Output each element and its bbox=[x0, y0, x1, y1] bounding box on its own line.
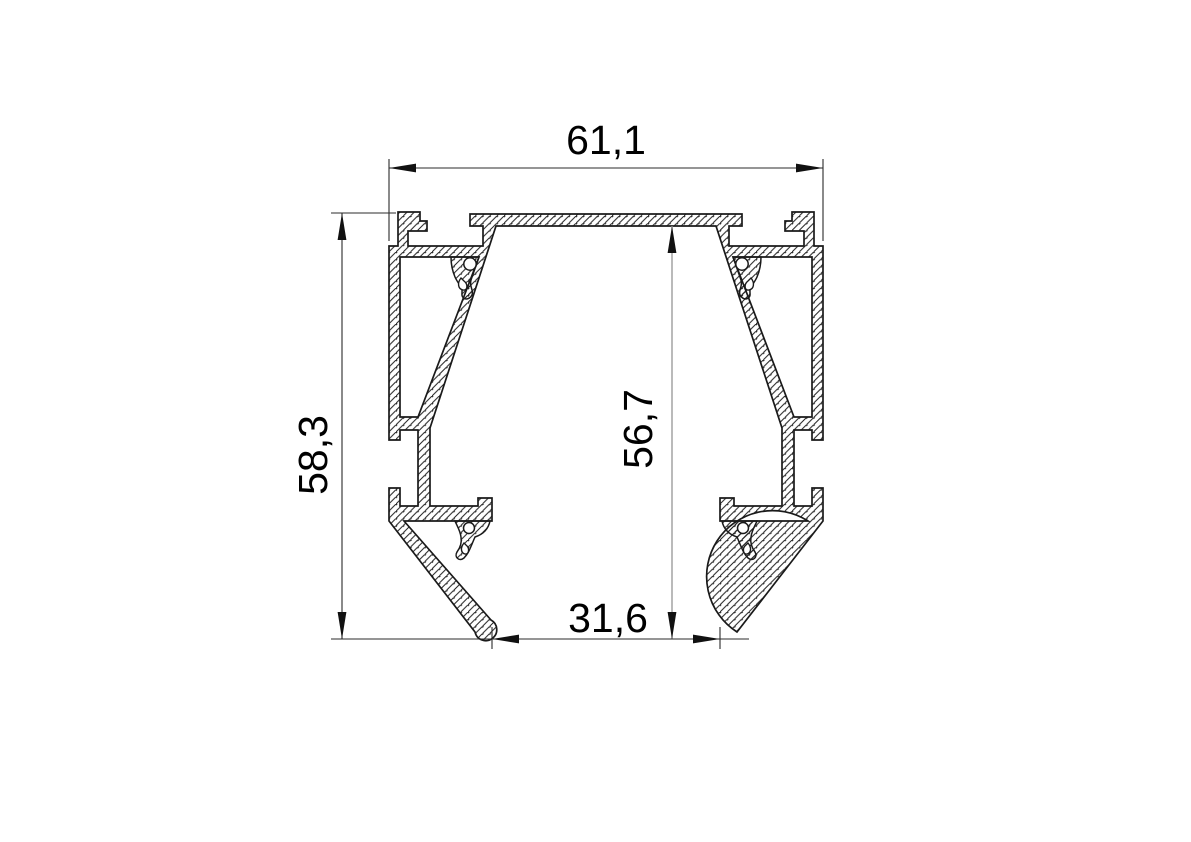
screw-port-hole-1-right bbox=[738, 523, 749, 534]
profile-cross-section bbox=[389, 212, 823, 641]
screw-port-hole-1-left bbox=[464, 523, 475, 534]
dimension-label-overall-height: 58,3 bbox=[290, 415, 336, 495]
dimension-label-overall-width: 61,1 bbox=[566, 117, 646, 163]
dimension-arrow-7 bbox=[693, 635, 720, 644]
dimension-label-inner-height: 56,7 bbox=[615, 389, 661, 469]
dimension-arrow-4 bbox=[668, 226, 677, 253]
dimension-label-bottom-opening-width: 31,6 bbox=[568, 595, 648, 641]
drawing-page: 61,1 58,3 56,7 31,6 bbox=[0, 0, 1191, 842]
dimension-arrow-5 bbox=[668, 612, 677, 639]
technical-drawing: 61,1 58,3 56,7 31,6 bbox=[0, 0, 1191, 842]
screw-port-hole-0-right bbox=[736, 258, 748, 270]
dimension-arrow-1 bbox=[796, 164, 823, 173]
dimension-arrow-3 bbox=[338, 612, 347, 639]
screw-port-hole-0-left bbox=[464, 258, 476, 270]
dimension-arrow-2 bbox=[338, 213, 347, 240]
dimension-arrow-0 bbox=[389, 164, 416, 173]
dimension-arrow-6 bbox=[492, 635, 519, 644]
